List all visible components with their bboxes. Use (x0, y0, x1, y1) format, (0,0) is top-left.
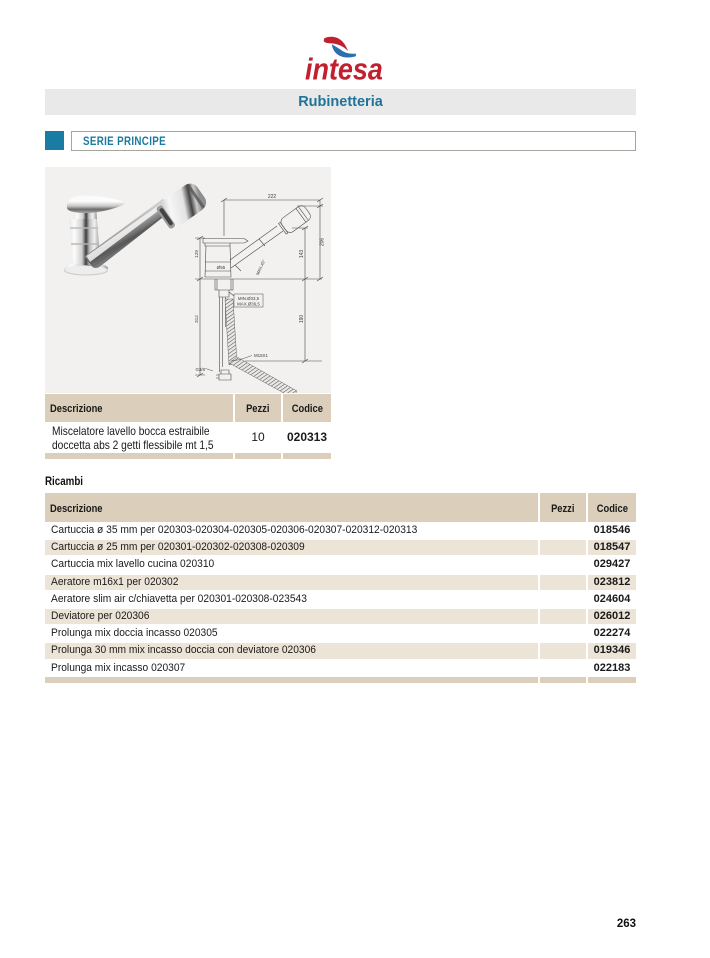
svg-text:143: 143 (299, 250, 305, 259)
svg-text:206: 206 (320, 238, 326, 247)
svg-text:MAX.Ø36,5: MAX.Ø36,5 (237, 302, 260, 307)
svg-text:222: 222 (268, 194, 277, 200)
svg-text:Ø55: Ø55 (217, 265, 226, 270)
svg-text:MAX.45°: MAX.45° (255, 259, 267, 276)
svg-text:G3/8": G3/8" (195, 367, 207, 372)
svg-text:129: 129 (194, 250, 199, 258)
svg-text:M15X1: M15X1 (254, 353, 268, 358)
svg-text:312: 312 (194, 315, 199, 323)
svg-text:intesa: intesa (305, 53, 383, 86)
svg-text:190: 190 (299, 315, 305, 324)
svg-text:MIN.Ø33,5: MIN.Ø33,5 (238, 296, 260, 301)
